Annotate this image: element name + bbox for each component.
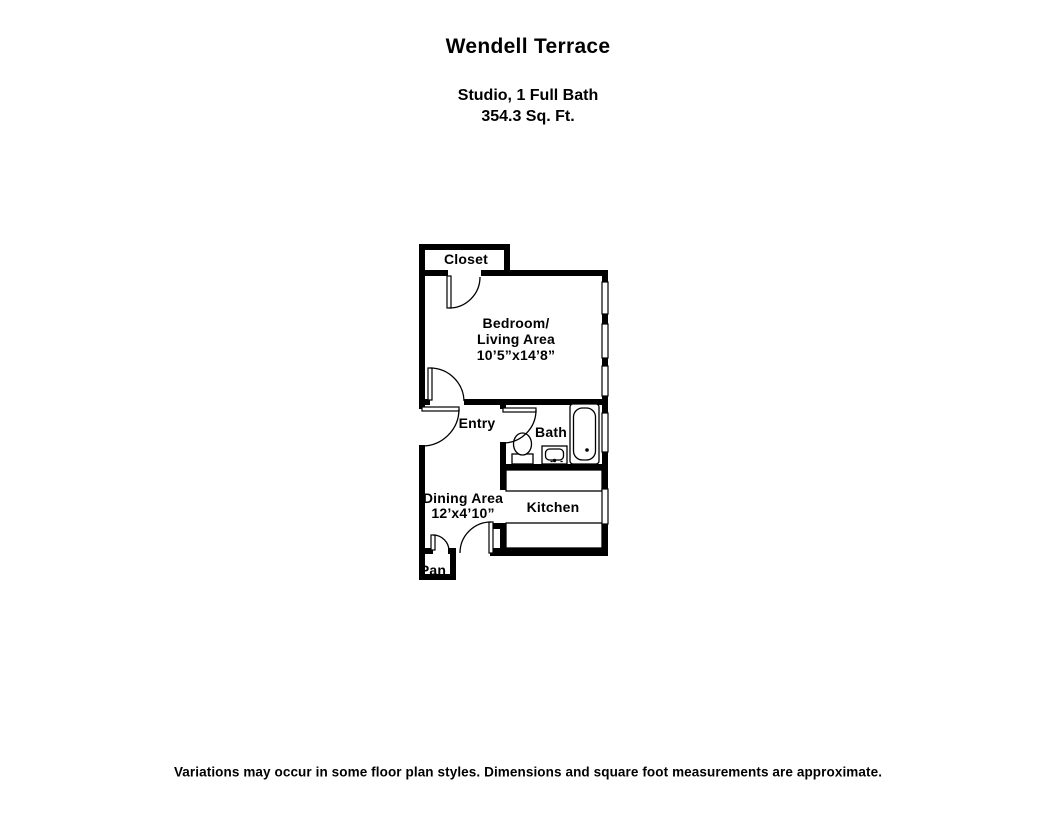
closet-label: Closet <box>444 251 488 267</box>
kitchen-window-icon <box>602 489 608 524</box>
wall-closet-top <box>419 244 510 250</box>
bath-label: Bath <box>535 424 567 440</box>
entry-door-icon <box>422 407 459 446</box>
wall-right-seg4 <box>602 396 608 413</box>
bedroom-window-1-icon <box>602 282 608 314</box>
wall-kitchen-west-upper <box>500 470 506 490</box>
wall-right-seg5 <box>602 452 608 489</box>
dining-dimensions: 12’x4’10” <box>423 506 503 521</box>
bedroom-label: Bedroom/ Living Area 10’5”x14’8” <box>477 315 555 363</box>
bedroom-label-line1: Bedroom/ <box>477 315 555 331</box>
bedroom-label-line2: Living Area <box>477 331 555 347</box>
kitchen-counter-upper-icon <box>506 470 602 491</box>
floorplan-page: Wendell Terrace Studio, 1 Full Bath 354.… <box>0 0 1056 816</box>
disclaimer-text: Variations may occur in some floor plan … <box>174 765 882 780</box>
kitchen-label: Kitchen <box>527 499 580 515</box>
entry-label: Entry <box>459 415 496 431</box>
bathtub-icon <box>570 404 599 464</box>
dining-label: Dining Area 12’x4’10” <box>423 491 503 521</box>
kitchen-counter-lower-icon <box>506 523 602 548</box>
bath-window-icon <box>602 413 608 452</box>
kitchen-door-icon <box>460 522 493 553</box>
floor-plan-drawing <box>0 0 1056 816</box>
closet-door-icon <box>447 276 480 308</box>
bedroom-window-3-icon <box>602 366 608 396</box>
sink-icon <box>542 446 567 464</box>
pantry-label: Pan <box>420 562 446 578</box>
wall-right-seg2 <box>602 314 608 324</box>
bedroom-dimensions: 10’5”x14’8” <box>477 347 555 363</box>
pantry-door-icon <box>431 535 449 551</box>
toilet-icon <box>512 433 533 464</box>
wall-right-seg3 <box>602 358 608 366</box>
wall-left-upper <box>419 244 425 409</box>
wall-bedroom-top <box>481 270 608 276</box>
wall-right-seg1 <box>602 270 608 282</box>
wall-bath-bottom <box>500 464 608 470</box>
wall-kitchen-bottom <box>490 548 608 556</box>
bedroom-window-2-icon <box>602 324 608 358</box>
bedroom-door-icon <box>428 368 464 401</box>
dining-label-line1: Dining Area <box>423 491 503 506</box>
